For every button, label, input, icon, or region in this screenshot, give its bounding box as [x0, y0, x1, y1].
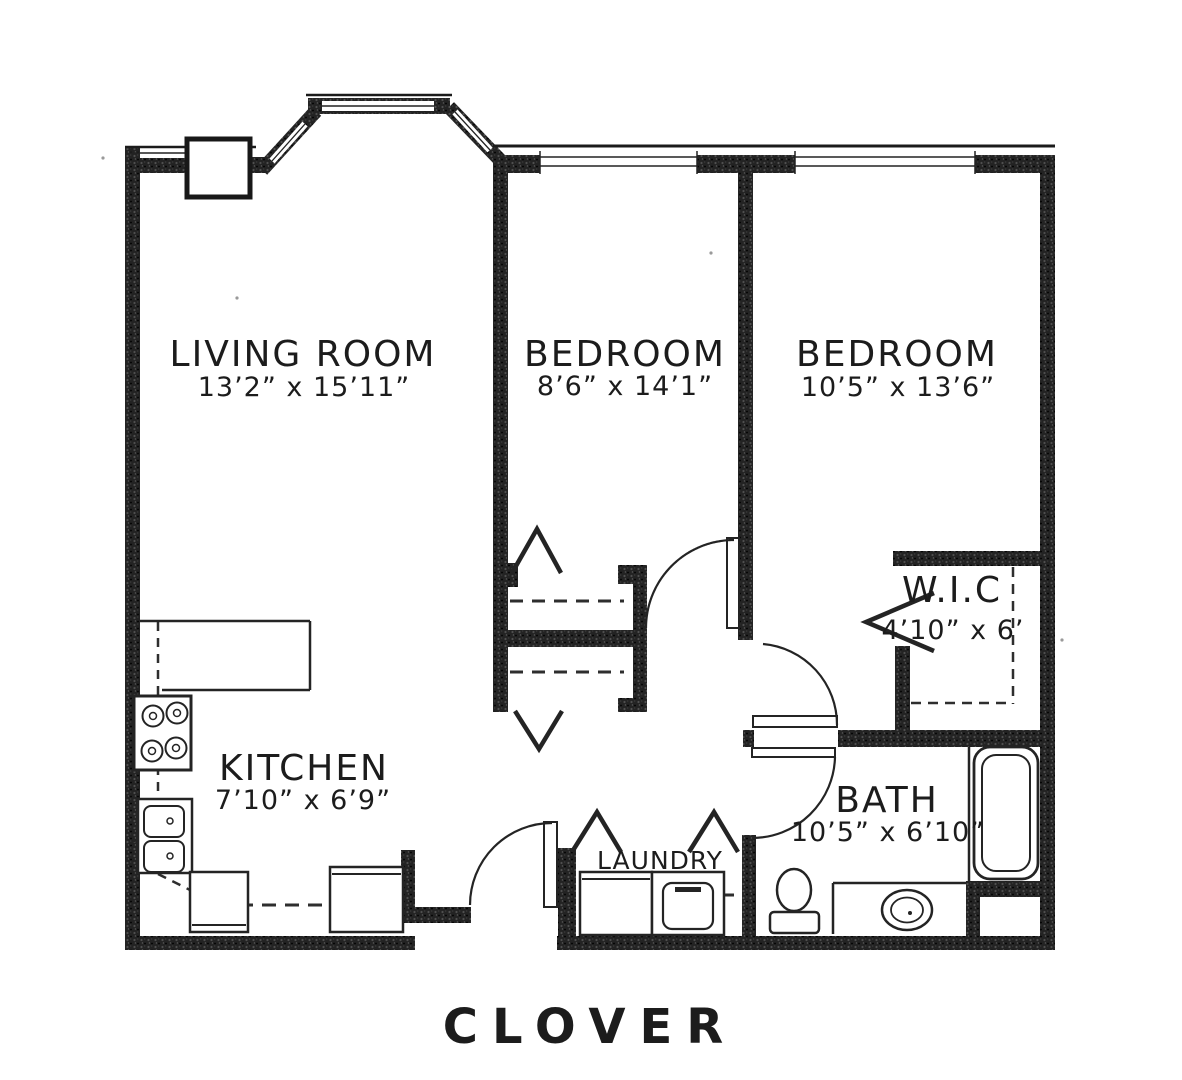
- bedroom1-closet-bifold: [512, 529, 561, 573]
- fireplace-box: [187, 139, 250, 197]
- wall-wic-top: [893, 551, 1040, 566]
- room-dims-kitchen: 7’10” x 6’9”: [215, 785, 391, 816]
- wall-niche-stub: [966, 897, 980, 938]
- kitchen-sink: [131, 799, 192, 873]
- washer: [580, 872, 652, 935]
- plan-title: CLOVER: [443, 999, 738, 1055]
- entry-door: [470, 822, 557, 907]
- wall-wic-left: [895, 646, 910, 733]
- room-label-kitchen: KITCHEN: [219, 748, 389, 789]
- room-dims-living-room: 13’2” x 15’11”: [198, 372, 411, 403]
- room-label-wic: W.I.C: [902, 570, 1002, 611]
- bedroom2-door: [753, 644, 837, 727]
- wall-right-exterior: [1040, 155, 1055, 950]
- room-dims-bath: 10’5” x 6’10”: [791, 817, 985, 848]
- bay-angled-left-window: [272, 124, 305, 161]
- wall-laundry-left: [558, 848, 576, 936]
- bay-top-window: [322, 101, 434, 111]
- bedroom2-window: [795, 151, 975, 174]
- wall-closet-middle: [500, 630, 647, 647]
- wall-bath-top-left: [743, 730, 754, 747]
- bath-sink: [882, 890, 932, 930]
- room-label-bedroom1: BEDROOM: [524, 334, 726, 375]
- wall-tub-bottom: [966, 881, 1040, 897]
- room-dims-wic: 4’10” x 6’: [881, 615, 1024, 646]
- wall-bath-left: [742, 835, 756, 936]
- stove: [134, 696, 191, 770]
- wall-closet-right-top-stub: [618, 565, 647, 584]
- wall-edge-lines: [125, 95, 1055, 147]
- wall-bath-top-right: [838, 730, 1055, 747]
- wall-bedroom1-bedroom2: [738, 157, 753, 640]
- room-label-laundry: LAUNDRY: [597, 846, 723, 875]
- wall-bottom-right: [557, 936, 1055, 950]
- bay-angled-right-window: [455, 112, 490, 150]
- kitchen-cabinet-right: [330, 867, 403, 932]
- toilet: [770, 869, 819, 933]
- dryer: [652, 872, 724, 935]
- wall-closet-right-bottom-stub: [618, 698, 647, 712]
- wall-bay-left: [125, 158, 190, 173]
- bedroom1-window: [540, 151, 697, 174]
- wall-closet-right: [633, 582, 647, 700]
- bedroom1-door: [646, 538, 739, 628]
- room-label-bath: BATH: [835, 780, 939, 821]
- wall-living-bedroom1: [493, 157, 508, 712]
- wall-entry-stub-horizontal: [401, 907, 471, 923]
- bathtub: [969, 747, 1038, 881]
- kitchen-cabinet-left: [190, 872, 248, 932]
- floor-plan-canvas: LIVING ROOM 13’2” x 15’11” BEDROOM 8’6” …: [0, 0, 1182, 1080]
- room-labels: LIVING ROOM 13’2” x 15’11” BEDROOM 8’6” …: [170, 334, 1025, 875]
- room-label-bedroom2: BEDROOM: [796, 334, 998, 375]
- room-label-living-room: LIVING ROOM: [170, 334, 437, 375]
- floor-plan-svg: LIVING ROOM 13’2” x 15’11” BEDROOM 8’6” …: [0, 0, 1182, 1080]
- room-dims-bedroom1: 8’6” x 14’1”: [537, 371, 713, 402]
- wall-bottom-kitchen: [125, 936, 415, 950]
- room-dims-bedroom2: 10’5” x 13’6”: [801, 372, 995, 403]
- hall-closet-bifold: [515, 711, 562, 749]
